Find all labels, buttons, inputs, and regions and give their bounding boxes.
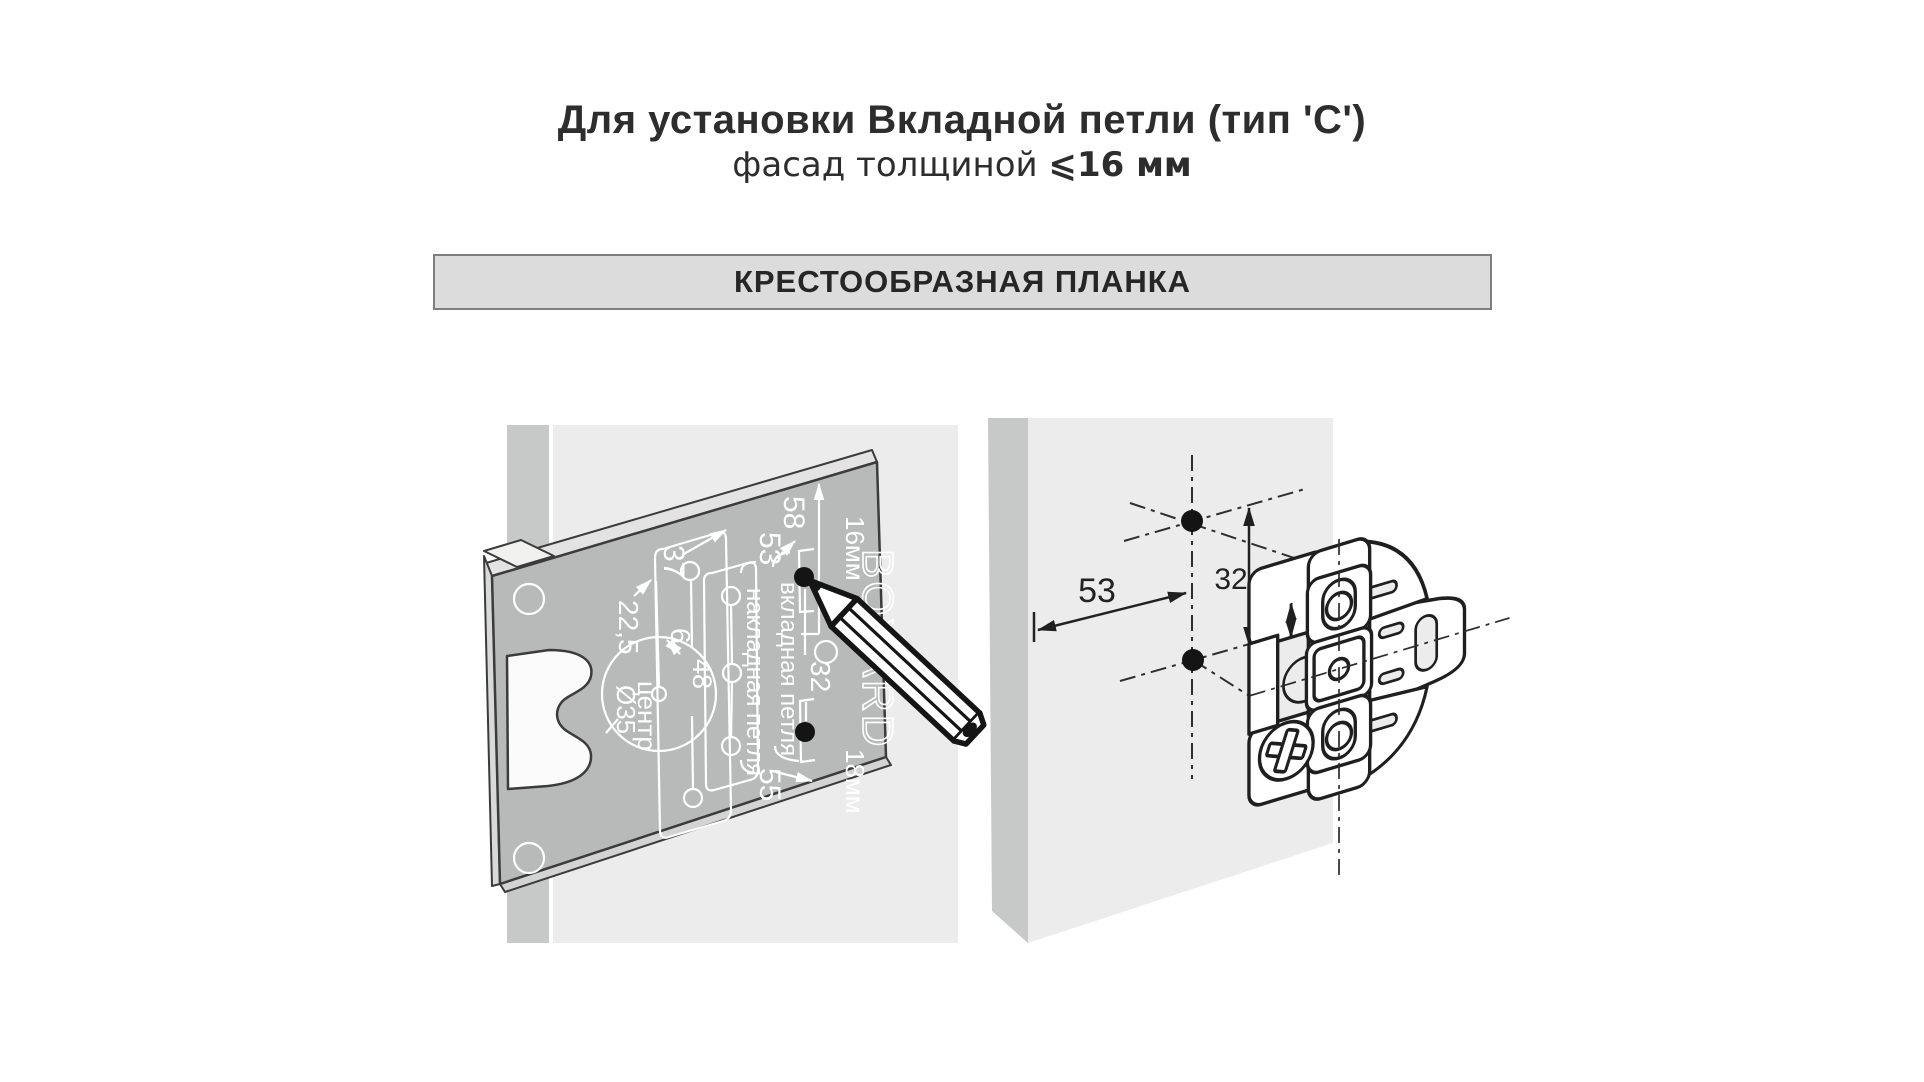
label-overlay-hinge: накладная петля: [741, 588, 768, 776]
marked-point-bottom: [795, 722, 815, 742]
dim-32-label: 32: [1214, 563, 1247, 596]
label-18mm: 18мм: [840, 749, 870, 814]
label-48: 48: [687, 659, 717, 689]
label-6: 6: [665, 628, 696, 644]
label-58: 58: [777, 496, 810, 529]
marking-figure: 53 32: [988, 418, 1510, 943]
dim-53-label: 53: [1078, 572, 1116, 610]
illustrations: 58 53 37 22,5 6 48 32 55 центр Ø35 вклад…: [0, 0, 1924, 1082]
template-figure: 58 53 37 22,5 6 48 32 55 центр Ø35 вклад…: [484, 425, 988, 943]
plate-left-web: [1249, 635, 1278, 734]
page: Для установки Вкладной петли (тип 'C') ф…: [0, 0, 1924, 1082]
drill-point-top: [1181, 510, 1203, 532]
label-37: 37: [657, 545, 690, 578]
label-o35: Ø35: [611, 685, 641, 734]
panel-edge-face: [988, 418, 1028, 943]
label-22-5: 22,5: [613, 600, 644, 655]
label-32: 32: [805, 661, 836, 692]
drill-point-bottom: [1182, 649, 1204, 671]
label-53: 53: [753, 532, 786, 565]
